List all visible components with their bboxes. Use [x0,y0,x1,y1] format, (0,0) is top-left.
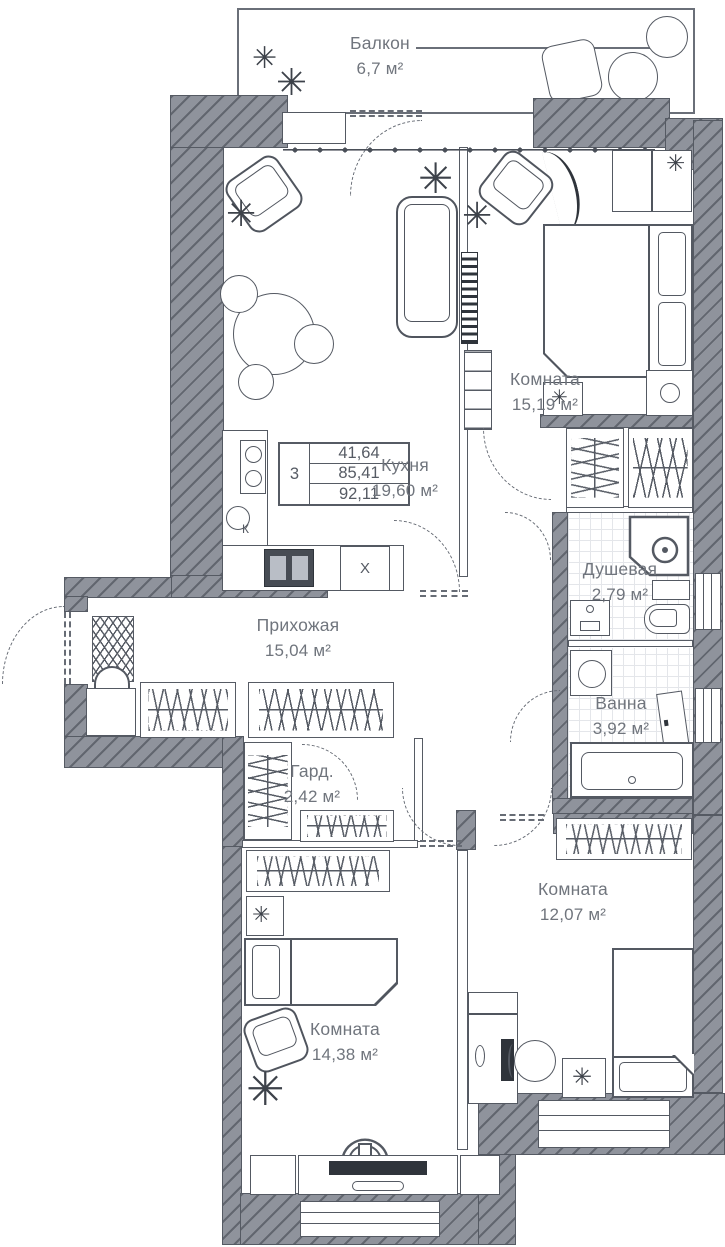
wall-entrance-stub [64,596,88,612]
room-left-closet [246,850,390,892]
room-left-name: Комната [310,1019,380,1039]
vase [660,383,680,403]
kitchen-name: Кухня [381,455,429,475]
tv-chair [338,1120,392,1158]
wall-wardrobe-left [222,736,244,848]
shower-area: 2,79 м² [560,582,680,608]
balcony-chair [646,16,688,58]
balcony-label: Балкон 6,7 м² [300,30,460,82]
wall-room-left-outer [222,846,242,1245]
wall-top-left [170,95,288,148]
balcony-door-arc [350,120,422,196]
bedroom-top-name: Комната [510,369,580,389]
desk-chair [514,1040,556,1082]
room-right-door-opening [500,814,544,821]
bedroom-door-arc [483,428,551,500]
fridge: X [340,546,390,591]
tv-screen [329,1161,427,1175]
stove-burner [245,470,262,487]
entrance-door-arc [2,606,64,684]
wall-bath-bottom [552,798,693,814]
wall-right-lower [693,815,723,1093]
plant-icon: ✳ [666,152,685,175]
plant-icon: ✳ [418,158,453,200]
room-right-name: Комната [538,879,608,899]
wall-hall-bottom [64,736,242,768]
shower-label: Душевая 2,79 м² [560,556,680,608]
sofa [396,196,458,338]
bath-door-arc [510,690,560,742]
shower-name: Душевая [583,559,657,579]
hallway-area: 15,04 м² [218,638,378,664]
hall-closet [248,682,394,738]
wall-top-right [533,98,670,148]
kitchen-label: Кухня 19,60 м² [330,452,480,504]
room-left-window [300,1201,440,1237]
bath-label: Ванна 3,92 м² [566,690,676,742]
balcony-name: Балкон [350,33,410,53]
plant-icon: ✳ [462,198,492,234]
pillow [252,945,280,999]
bath-area: 3,92 м² [566,716,676,742]
room-left-area: 14,38 м² [270,1042,420,1068]
room-right-bed [612,948,694,1098]
stove-burner [245,446,262,463]
hallway-name: Прихожая [257,615,340,635]
room-left-door-arc [402,788,460,846]
bedroom-commode [646,370,693,416]
closet [566,428,624,508]
stove [240,440,266,494]
bedroom-top-label: Комната 15,19 м² [470,366,620,418]
pillow [658,302,686,366]
balcony-glazing-line [283,146,655,154]
balcony-door-opening [350,110,422,117]
shower-door-arc [505,512,551,560]
partition-bottom-rooms [457,850,468,1150]
wardrobe-closet [300,810,394,842]
plant-icon: ✳ [246,1066,285,1112]
radiator [461,252,478,344]
kitchen-area: 19,60 м² [330,478,480,504]
dining-chair [294,324,334,364]
balcony-chair [608,52,658,102]
dining-chair [220,275,258,313]
tv-cabinet [460,1155,500,1195]
balcony-table [540,37,605,105]
plant-icon: ✳ [252,44,277,74]
bathtub [570,742,694,798]
dining-chair [238,364,274,400]
single-bed [244,938,398,1006]
bath-window [695,688,721,743]
fridge-label: X [360,560,370,577]
bedroom-top-area: 15,19 м² [470,392,620,418]
hall-console [86,688,136,736]
sink [264,549,314,587]
floor-plan: Балкон 6,7 м² ✳ ✳ ✳ ✳ [0,0,725,1247]
blanket-fold [674,1054,694,1074]
wall-hall-top-left [64,577,172,598]
plant-icon: ✳ [226,196,256,232]
room-right-label: Комната 12,07 м² [498,876,648,928]
bath-name: Ванна [595,693,646,713]
desk-lamp [475,1045,485,1067]
nook-opening [420,590,468,597]
double-bed [543,224,693,378]
room-left-label: Комната 14,38 м² [270,1016,420,1068]
hallway-label: Прихожая 15,04 м² [218,612,378,664]
entrance-door-leaf [64,612,71,684]
tv-console [298,1155,458,1195]
soundbar [352,1181,404,1191]
shower-window [695,573,721,630]
plant-icon: ✳ [572,1066,592,1090]
room-right-window [538,1100,670,1148]
plant-icon: ✳ [252,904,270,926]
balcony-window-sill [282,112,346,144]
closet [628,428,693,508]
desk-chair-back [508,1044,518,1078]
boiler-label: К [242,522,249,536]
toilet [644,604,690,634]
tv-cabinet [250,1155,296,1195]
balcony-area: 6,7 м² [300,56,460,82]
kitchen-door-arc [394,520,460,592]
hall-closet [140,682,236,738]
partition-shower-bath [568,640,693,647]
blanket-fold [376,984,398,1006]
rooms-count: 3 [280,444,310,504]
room-right-closet [556,818,692,860]
wardrobe-door-arc [302,744,358,800]
wall-left-upper [170,147,224,597]
pillow [658,232,686,296]
room-right-area: 12,07 м² [498,902,648,928]
room-left-door-opening [420,840,462,847]
